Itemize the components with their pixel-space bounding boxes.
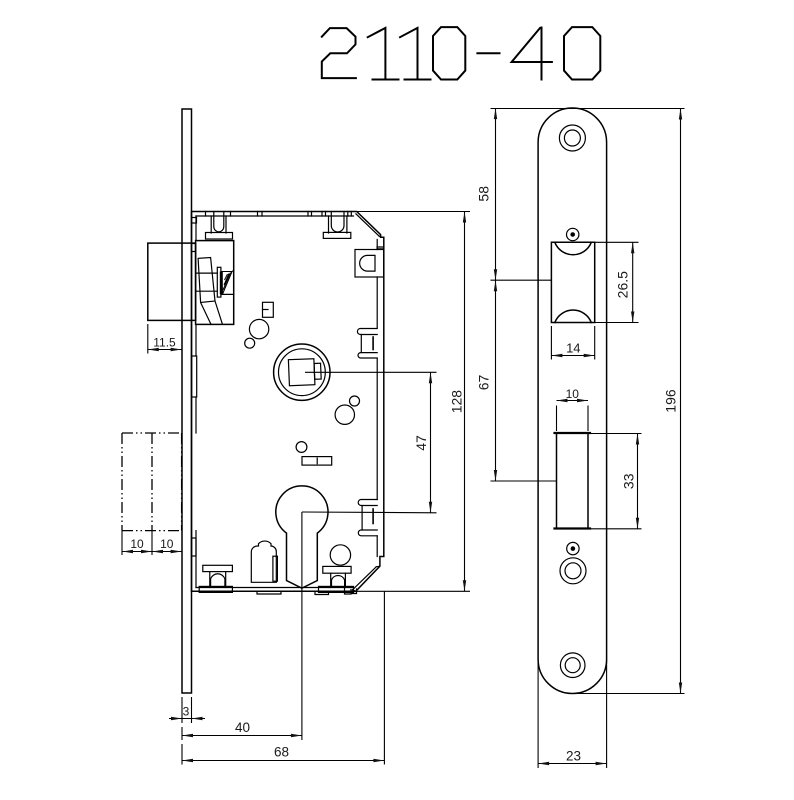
svg-text:40: 40 <box>235 720 250 735</box>
svg-text:68: 68 <box>274 745 289 760</box>
svg-text:10: 10 <box>130 537 144 551</box>
svg-text:128: 128 <box>449 390 465 414</box>
svg-text:67: 67 <box>476 375 492 391</box>
svg-text:196: 196 <box>663 389 679 413</box>
svg-text:58: 58 <box>476 186 492 202</box>
svg-text:14: 14 <box>566 340 580 355</box>
svg-text:3: 3 <box>183 705 190 719</box>
svg-text:23: 23 <box>566 748 581 763</box>
svg-text:10: 10 <box>160 537 174 551</box>
svg-text:33: 33 <box>621 473 637 489</box>
svg-text:47: 47 <box>413 435 429 451</box>
svg-text:10: 10 <box>566 387 580 401</box>
svg-text:26.5: 26.5 <box>615 271 631 298</box>
svg-text:11.5: 11.5 <box>153 336 176 350</box>
